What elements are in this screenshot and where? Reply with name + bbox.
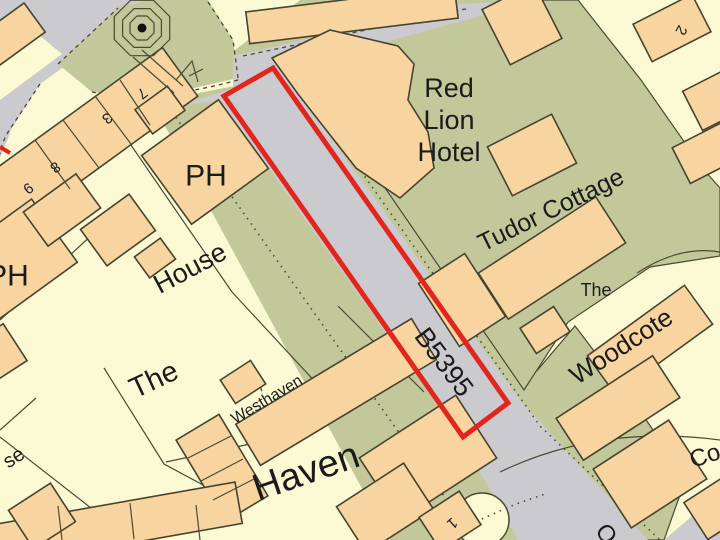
map-canvas[interactable]: Red Lion Hotel Tudor Cottage PH PH House… bbox=[0, 0, 720, 540]
label-red-lion-hotel-1: Red bbox=[424, 73, 474, 103]
label-red-lion-hotel-3: Hotel bbox=[417, 137, 480, 167]
label-ph: PH bbox=[185, 160, 227, 193]
monument-dot bbox=[138, 24, 147, 33]
label-ph-left: PH bbox=[0, 260, 29, 293]
label-the-2: The bbox=[580, 280, 611, 300]
label-red-lion-hotel-2: Lion bbox=[423, 105, 474, 135]
map-extract[interactable]: Red Lion Hotel Tudor Cottage PH PH House… bbox=[0, 0, 720, 540]
